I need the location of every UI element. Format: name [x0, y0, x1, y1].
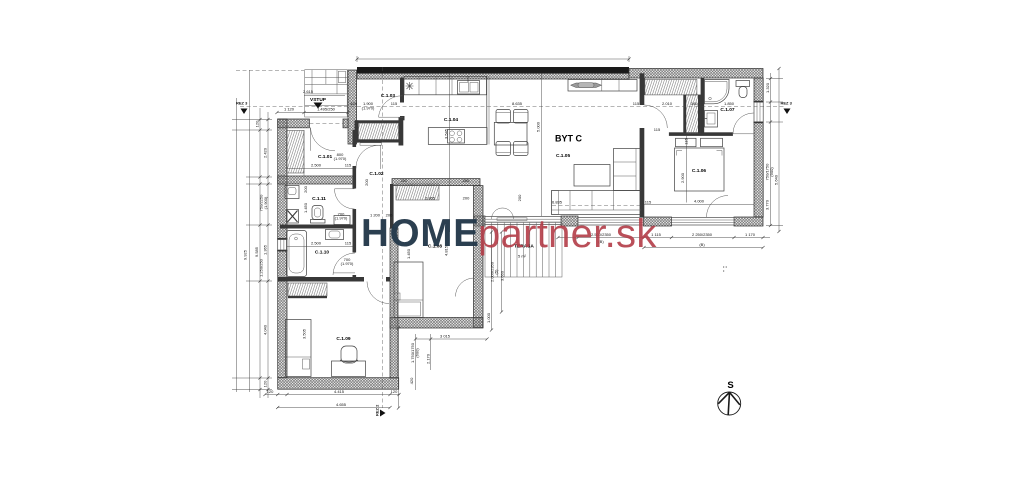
svg-text:REZ 2: REZ 2	[375, 404, 380, 416]
svg-text:1.000: 1.000	[486, 312, 491, 323]
svg-text:420: 420	[409, 377, 414, 384]
svg-text:REZ 3: REZ 3	[236, 101, 248, 106]
svg-text:115: 115	[633, 101, 640, 106]
svg-text:5.640: 5.640	[774, 174, 779, 185]
svg-text:115: 115	[345, 163, 352, 168]
svg-text:200: 200	[517, 194, 522, 201]
svg-text:(600): (600)	[414, 348, 419, 358]
svg-text:6.835: 6.835	[552, 200, 563, 205]
svg-text:115: 115	[645, 200, 652, 205]
svg-text:1.495/250: 1.495/250	[317, 107, 336, 112]
svg-text:2.170: 2.170	[425, 353, 430, 364]
svg-text:C.1.01: C.1.01	[318, 154, 332, 160]
svg-text:C.1.10: C.1.10	[315, 250, 329, 256]
svg-text:4.655: 4.655	[336, 402, 347, 407]
svg-text:(1.970): (1.970)	[334, 156, 347, 161]
svg-text:REZ 3: REZ 3	[781, 101, 793, 106]
svg-text:2.010: 2.010	[662, 101, 673, 106]
svg-text:5.000: 5.000	[536, 121, 541, 132]
svg-text:120: 120	[391, 389, 398, 394]
svg-text:2.865: 2.865	[425, 196, 436, 201]
svg-text:(5): (5)	[494, 269, 499, 275]
svg-text:(1.970): (1.970)	[341, 261, 354, 266]
svg-text:(1.970): (1.970)	[335, 216, 348, 221]
svg-text:115: 115	[654, 127, 661, 132]
svg-text:4.040: 4.040	[263, 324, 268, 335]
svg-text:2.500: 2.500	[311, 241, 322, 246]
svg-text:C.1.02: C.1.02	[369, 171, 383, 177]
svg-text:partner.sk: partner.sk	[478, 212, 657, 256]
svg-text:C.1.04: C.1.04	[444, 117, 458, 123]
svg-text:C.1.03: C.1.03	[381, 93, 395, 99]
svg-text:S: S	[727, 380, 733, 391]
svg-text:HOME: HOME	[361, 212, 480, 255]
svg-text:1.450: 1.450	[303, 202, 308, 213]
svg-text:420: 420	[350, 101, 357, 106]
svg-text:VSTUP: VSTUP	[310, 97, 327, 103]
svg-text:4.415: 4.415	[334, 389, 345, 394]
svg-text:2.420: 2.420	[263, 147, 268, 158]
svg-text:C.1.05: C.1.05	[556, 153, 570, 159]
svg-text:340: 340	[691, 101, 698, 106]
svg-text:4.000: 4.000	[694, 199, 705, 204]
svg-text:200: 200	[401, 178, 408, 183]
svg-text:120: 120	[263, 380, 268, 387]
svg-text:2.900: 2.900	[680, 172, 685, 183]
svg-text:9.925: 9.925	[243, 249, 248, 260]
svg-text:200: 200	[364, 178, 369, 185]
svg-text:1.320: 1.320	[765, 82, 770, 93]
svg-text:8.635: 8.635	[512, 101, 523, 106]
svg-text:3.545: 3.545	[444, 128, 449, 139]
svg-text:(1.970): (1.970)	[362, 106, 375, 111]
svg-text:C.1.06: C.1.06	[692, 168, 706, 174]
svg-text:3.660: 3.660	[500, 270, 505, 281]
svg-text:1.365: 1.365	[263, 244, 268, 255]
svg-text:(1.900): (1.900)	[263, 196, 268, 209]
svg-text:2.615: 2.615	[303, 89, 314, 94]
svg-text:115: 115	[345, 241, 352, 246]
svg-text:1 170: 1 170	[745, 232, 756, 237]
svg-text:9.585: 9.585	[254, 246, 259, 257]
svg-text:1 120: 1 120	[284, 107, 295, 112]
svg-text:1.250/250: 1.250/250	[259, 258, 264, 277]
svg-text:200: 200	[303, 185, 308, 192]
svg-text:3 015: 3 015	[440, 334, 451, 339]
svg-text:(B): (B)	[699, 242, 705, 247]
svg-text:115: 115	[391, 101, 398, 106]
svg-text:C.1.11: C.1.11	[312, 196, 326, 202]
svg-text:200: 200	[463, 178, 470, 183]
svg-text:200: 200	[463, 196, 470, 201]
svg-text:3.505: 3.505	[302, 328, 307, 339]
svg-text:BYT C: BYT C	[555, 134, 583, 144]
svg-text:2 250/2350: 2 250/2350	[692, 232, 713, 237]
svg-text:C.1.07: C.1.07	[720, 107, 734, 113]
svg-text:115: 115	[684, 138, 689, 145]
svg-text:3.770: 3.770	[765, 199, 770, 210]
svg-text:2.500: 2.500	[311, 163, 322, 168]
svg-text:1.850: 1.850	[724, 101, 735, 106]
svg-text:C.1.09: C.1.09	[336, 336, 350, 342]
